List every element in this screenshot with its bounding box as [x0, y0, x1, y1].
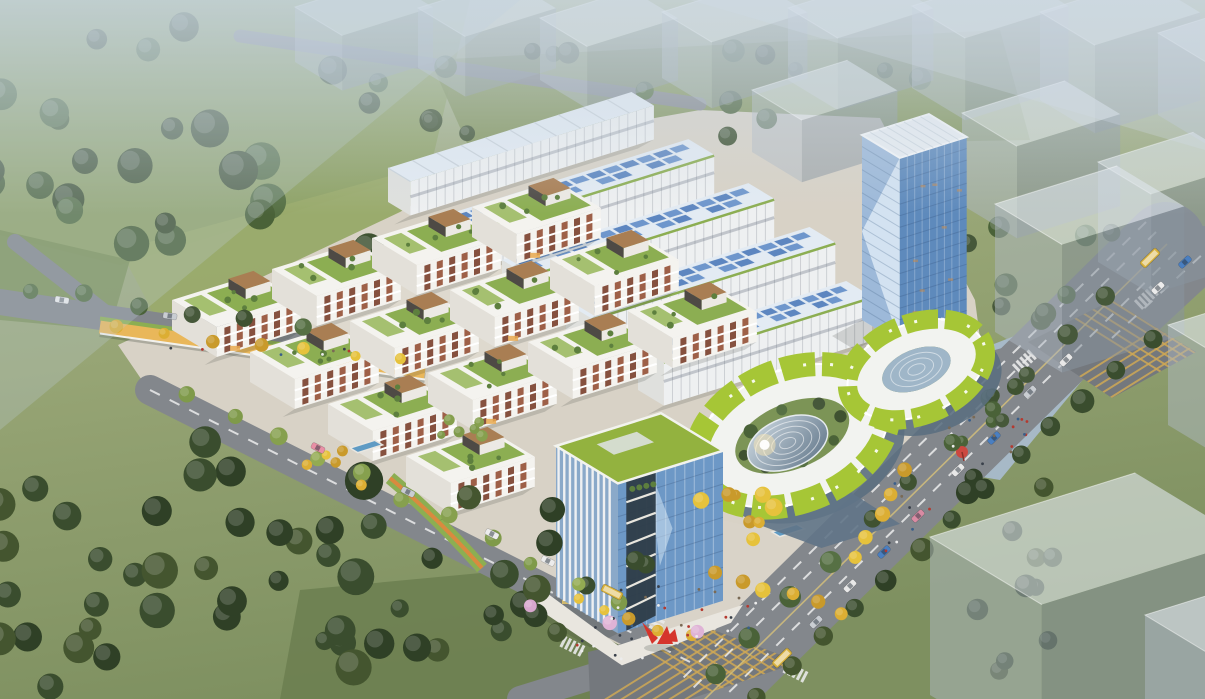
tree — [820, 551, 842, 573]
tree — [206, 335, 220, 349]
rendering-canvas — [0, 0, 1205, 699]
tree — [266, 519, 293, 546]
tree — [356, 480, 367, 491]
person — [581, 650, 584, 653]
tree — [295, 318, 312, 335]
tree — [693, 492, 710, 509]
person — [754, 602, 757, 605]
person — [911, 528, 914, 531]
tree — [142, 496, 172, 526]
tree — [721, 487, 736, 502]
person — [686, 634, 689, 637]
tree — [540, 497, 565, 522]
person — [631, 625, 634, 628]
person — [908, 506, 911, 509]
person — [738, 597, 741, 600]
person — [620, 589, 623, 592]
person — [981, 462, 984, 465]
atrium-trees — [629, 486, 635, 492]
tree — [1012, 445, 1031, 464]
tree — [524, 599, 537, 612]
tree — [316, 516, 344, 544]
person — [594, 626, 597, 629]
person — [893, 482, 896, 485]
tree — [63, 632, 94, 663]
tree — [142, 552, 178, 588]
person — [169, 347, 172, 350]
person — [663, 607, 666, 610]
person — [201, 348, 204, 351]
person — [701, 608, 704, 611]
tree — [602, 616, 617, 631]
tree — [755, 582, 771, 598]
person — [968, 419, 971, 422]
tree — [255, 338, 269, 352]
tree — [884, 488, 898, 502]
atrium-trees — [643, 483, 649, 489]
person — [619, 634, 622, 637]
tree — [811, 595, 825, 609]
tree — [753, 517, 764, 528]
person — [695, 635, 698, 638]
person — [630, 637, 633, 640]
person — [928, 508, 931, 511]
tree — [1096, 286, 1115, 305]
tree — [140, 593, 175, 628]
tree — [179, 386, 195, 402]
tree — [403, 634, 431, 662]
tree — [787, 587, 800, 600]
atrium-trees — [650, 481, 656, 487]
tree — [705, 664, 725, 684]
person — [1026, 420, 1029, 423]
person — [1010, 451, 1013, 454]
tree — [1106, 361, 1125, 380]
person — [592, 645, 595, 648]
person — [698, 588, 701, 591]
tree — [974, 478, 995, 499]
tree — [474, 417, 484, 427]
person — [952, 445, 955, 448]
tree — [217, 586, 247, 616]
tree — [159, 328, 170, 339]
tree — [1041, 417, 1061, 437]
tree — [943, 511, 961, 529]
tree — [652, 625, 664, 637]
tree — [574, 593, 584, 603]
person — [888, 541, 891, 544]
person — [900, 495, 903, 498]
person — [714, 590, 717, 593]
person — [1023, 433, 1026, 436]
person — [687, 625, 690, 628]
tree — [316, 543, 340, 567]
tree — [626, 551, 645, 570]
tree — [225, 508, 254, 537]
tree — [302, 459, 313, 470]
person — [343, 348, 346, 351]
person — [617, 606, 620, 609]
tree — [183, 458, 216, 491]
person — [1017, 418, 1020, 421]
tree — [483, 605, 504, 626]
tree — [1144, 330, 1163, 349]
person — [332, 350, 335, 353]
tree — [736, 574, 751, 589]
tree — [270, 427, 288, 445]
tree — [858, 530, 872, 544]
tree — [814, 626, 833, 645]
tree — [364, 629, 394, 659]
tree — [708, 566, 722, 580]
person — [724, 616, 727, 619]
tree — [350, 351, 360, 361]
tree — [22, 476, 48, 502]
person — [348, 350, 351, 353]
tree — [194, 556, 218, 580]
tree — [441, 507, 458, 524]
person — [321, 353, 324, 356]
person — [641, 657, 644, 660]
person — [610, 617, 613, 620]
tree — [985, 401, 1001, 417]
tree — [457, 485, 481, 509]
person — [948, 426, 951, 429]
tree — [536, 530, 562, 556]
tree — [53, 502, 82, 531]
person — [993, 434, 996, 437]
person — [747, 626, 750, 629]
person — [680, 624, 683, 627]
tree — [269, 571, 289, 591]
person — [972, 416, 975, 419]
person — [1010, 445, 1013, 448]
tree — [37, 674, 63, 699]
tree — [746, 532, 760, 546]
person — [726, 630, 729, 633]
tree — [216, 456, 246, 486]
tree — [228, 409, 243, 424]
tree — [93, 643, 120, 670]
tree — [444, 414, 455, 425]
tree — [738, 627, 759, 648]
tree — [755, 487, 771, 503]
tree — [335, 649, 371, 685]
tree — [236, 310, 253, 327]
tree — [353, 464, 371, 482]
tree — [391, 599, 409, 617]
tree — [88, 547, 112, 571]
tree — [337, 558, 374, 595]
tree — [845, 599, 863, 617]
tree — [572, 578, 585, 591]
tree — [421, 548, 442, 569]
person — [620, 657, 623, 660]
tree — [1070, 389, 1094, 413]
person — [576, 644, 579, 647]
tree — [875, 570, 897, 592]
tree — [13, 622, 42, 651]
tree — [395, 353, 406, 364]
tree — [622, 612, 635, 625]
tree — [84, 592, 109, 617]
person — [644, 596, 647, 599]
tree — [835, 607, 848, 620]
person — [885, 549, 888, 552]
person — [746, 605, 749, 608]
person — [657, 585, 660, 588]
person — [657, 604, 660, 607]
tree — [1057, 324, 1077, 344]
tree — [849, 551, 862, 564]
tree — [1019, 367, 1035, 383]
person — [614, 654, 617, 657]
tree — [454, 426, 465, 437]
person — [895, 541, 898, 544]
tree — [330, 457, 340, 467]
tree — [361, 513, 387, 539]
tree — [297, 342, 310, 355]
tree — [524, 557, 537, 570]
tree — [944, 434, 961, 451]
tree — [547, 623, 567, 643]
person — [280, 353, 283, 356]
tree — [337, 445, 348, 456]
tree — [599, 605, 609, 615]
person — [581, 639, 584, 642]
tree — [315, 632, 333, 650]
tree — [523, 575, 551, 603]
tree — [189, 426, 221, 458]
tree — [490, 560, 519, 589]
person — [730, 616, 733, 619]
atrium-trees — [636, 484, 642, 490]
tree — [184, 306, 201, 323]
person — [1012, 425, 1015, 428]
tree — [437, 431, 445, 439]
tree — [1034, 478, 1053, 497]
tree — [897, 462, 912, 477]
architectural-rendering — [0, 0, 1205, 699]
person — [1020, 418, 1023, 421]
tree — [875, 506, 890, 521]
person — [676, 642, 679, 645]
sculpture-shadow — [644, 644, 676, 652]
